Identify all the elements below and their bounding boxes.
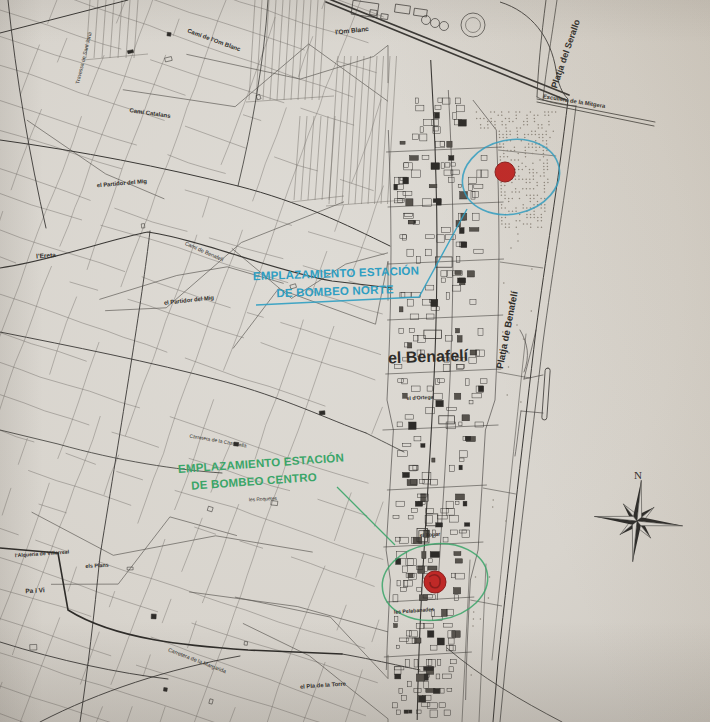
label-om-blanc: l'Om Blanc [335, 26, 369, 36]
label-partidor-del-mig-nord: el Partidor del Mig [97, 179, 148, 189]
label-travessa-sant-jordi: Travessa de Sant Jordi [75, 32, 93, 85]
map-photo: l'Om BlancCamí de l'Om BlancCamí Catalan… [0, 0, 710, 722]
label-cami-catalans: Camí Catalans [129, 107, 171, 119]
label-els-plans: els Plans [85, 563, 109, 570]
map-labels-layer: l'Om BlancCamí de l'Om BlancCamí Catalan… [0, 0, 710, 722]
label-el-dortega: el d'Ortega [406, 395, 433, 402]
label-alqueria-villarreal: l'Alqueria de Villarreal [15, 550, 69, 559]
label-cami-om-blanc: Camí de l'Om Blanc [187, 28, 242, 53]
label-el-xopar: el Xopar [420, 532, 441, 539]
label-pa-i-vi: Pa i Vi [25, 587, 45, 595]
label-cami-de-benafeli: Camí de Benafelí [184, 241, 224, 263]
label-estacion-centro-line1: EMPLAZAMIENTO ESTACIÓN [178, 452, 345, 475]
label-carretera-cassalella: Carretera de la Cassalella [189, 434, 247, 449]
label-pla-de-la-torre: el Pla de la Torre [300, 682, 346, 691]
label-platja-del-serallo: Platja del Serallo [550, 18, 582, 89]
label-estacion-centro-line2: DE BOMBEO CENTRO [191, 472, 317, 492]
label-compass-n: N [634, 470, 642, 481]
label-les-pelabanades: les Pelabanades [394, 607, 435, 615]
label-estacion-norte-line2: DE BOMBEO NORTE [276, 284, 394, 300]
label-carretera-margarida: Carretera de la Margarida [167, 647, 227, 674]
label-partidor-del-mig-sud: el Partidor del Mig [164, 295, 215, 306]
label-estacion-norte-line1: EMPLAZAMIENTO ESTACIÓN [253, 265, 420, 282]
label-escullera-mitgera: Escullera de la Mitgera [543, 94, 606, 110]
label-ereta: l'Ereta [36, 252, 56, 260]
label-el-benafeli: el Benafelí [388, 348, 469, 367]
label-platja-de-benafeli: Platja de Benafelí [495, 290, 519, 369]
label-les-roquetes: les Roquetes [249, 497, 277, 503]
